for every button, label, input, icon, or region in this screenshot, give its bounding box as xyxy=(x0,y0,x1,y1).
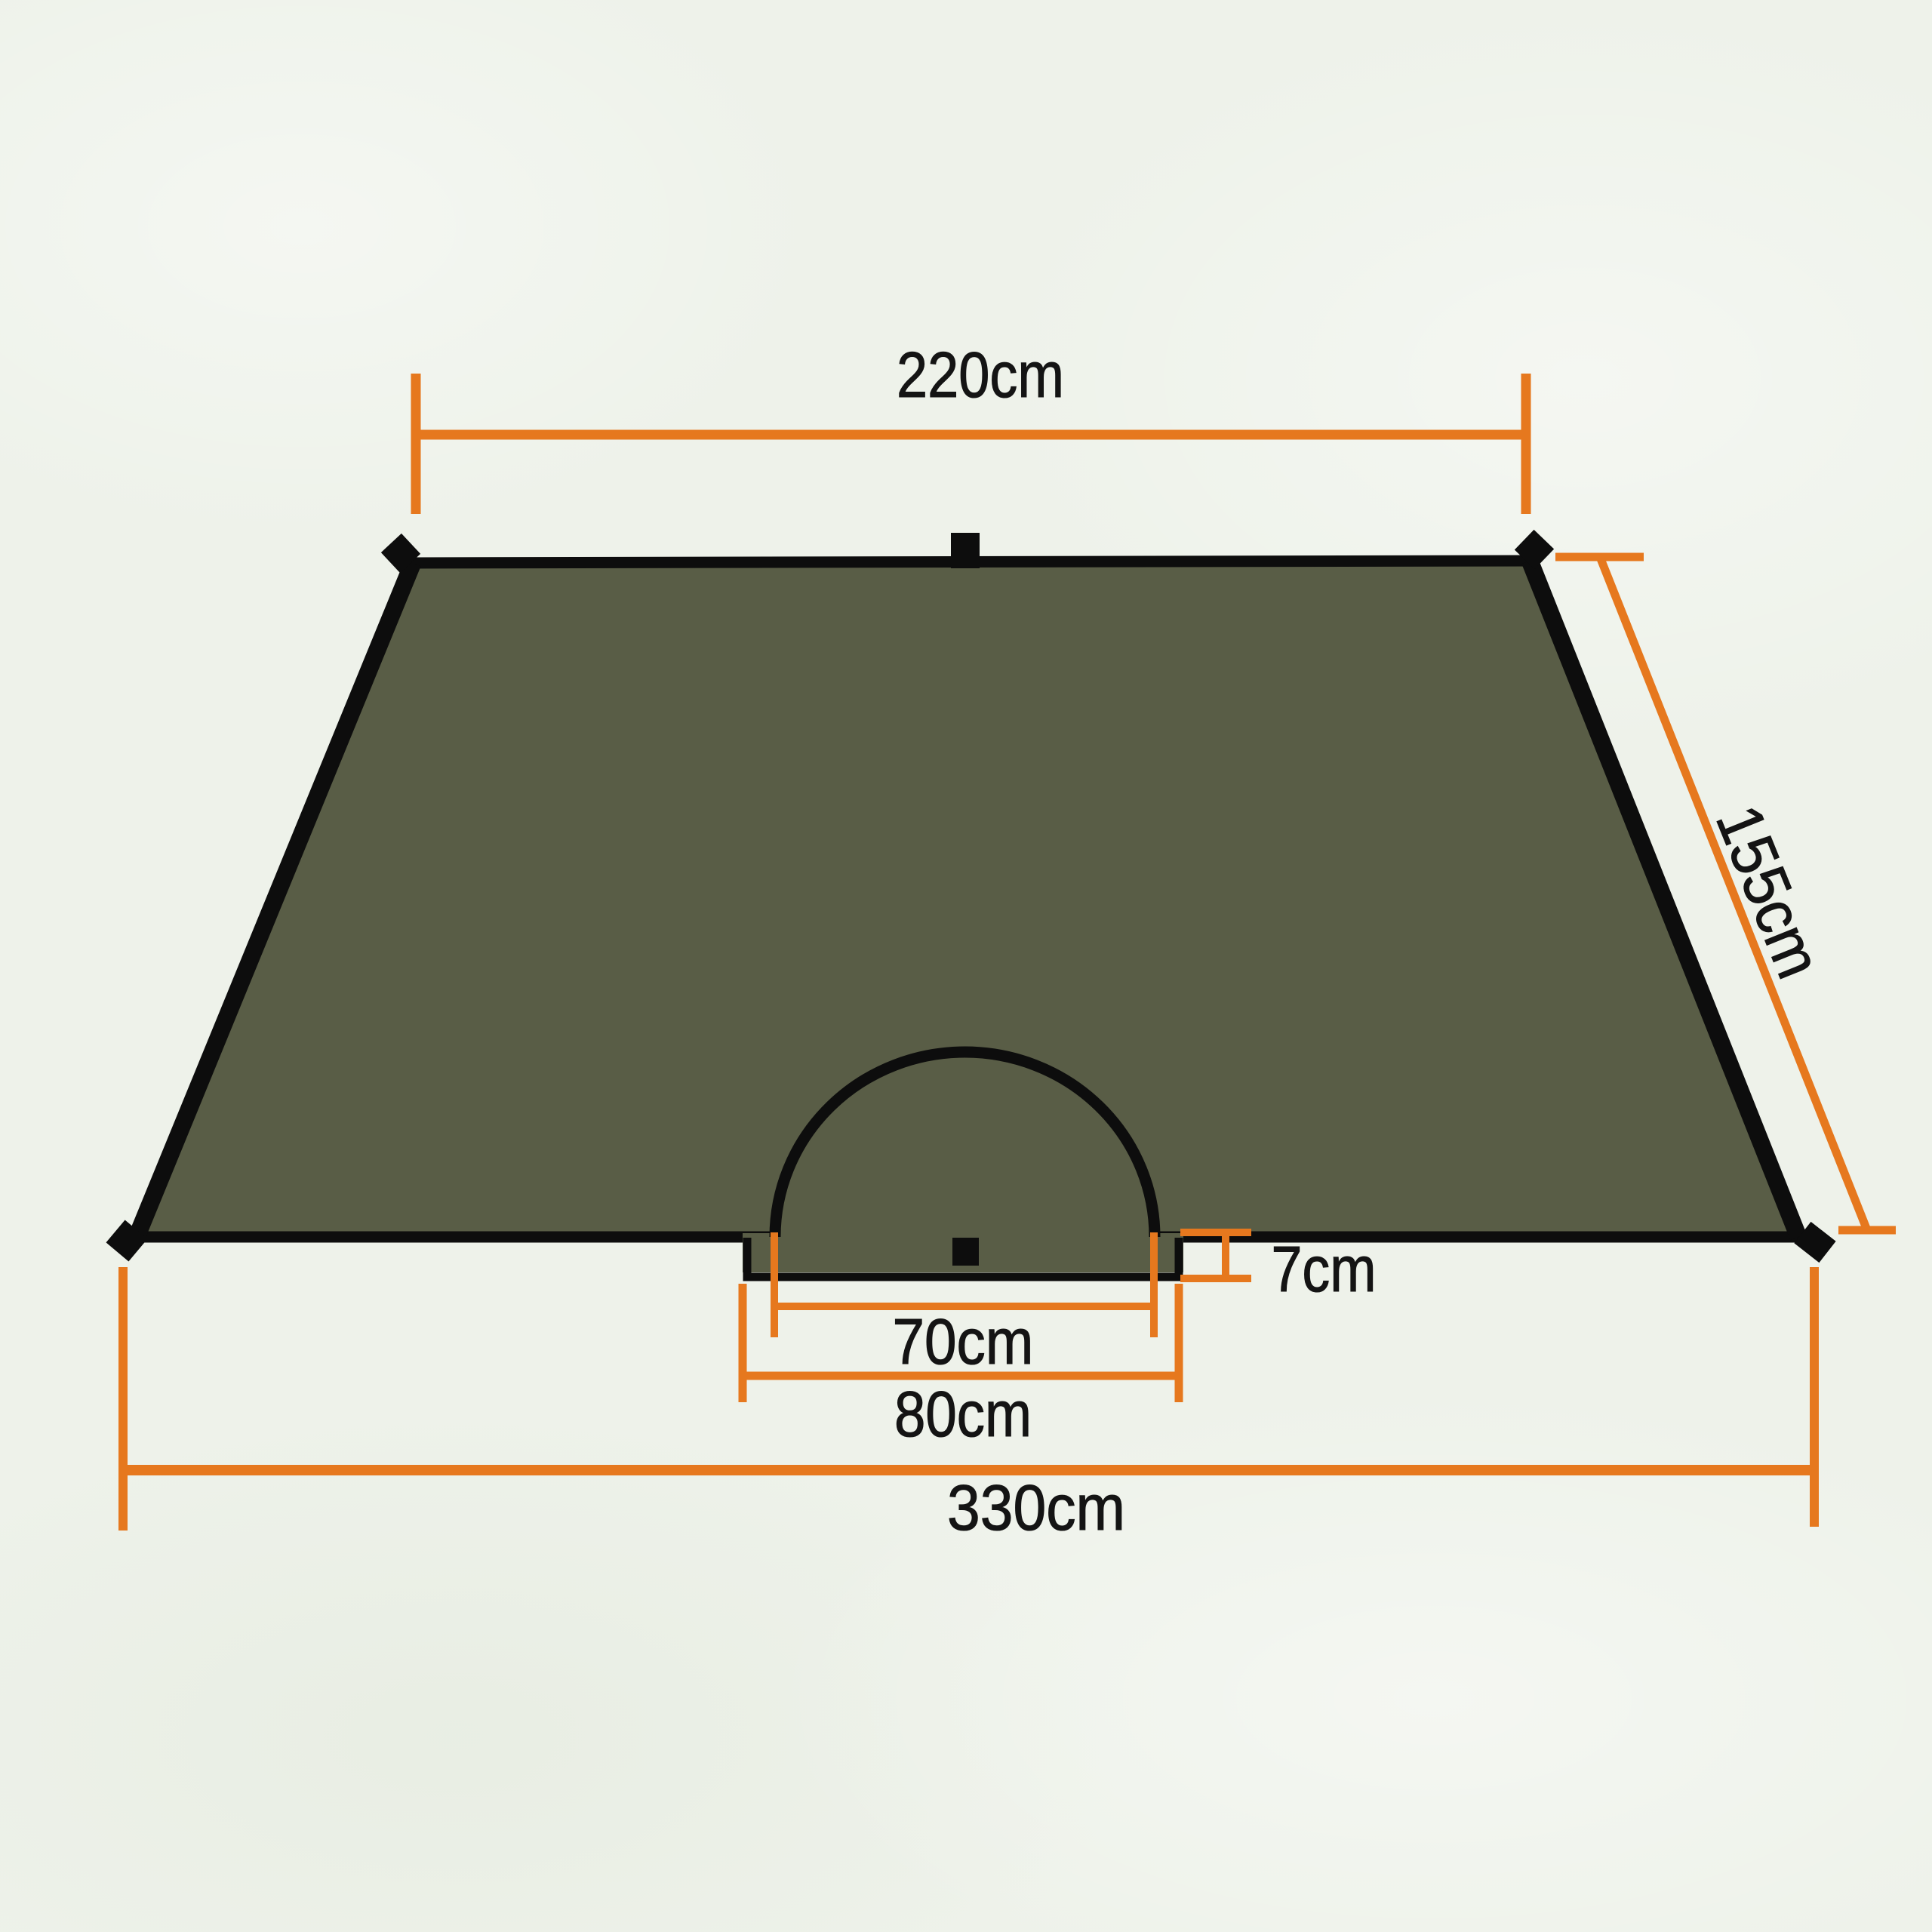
svg-text:330cm: 330cm xyxy=(947,1472,1125,1544)
svg-text:220cm: 220cm xyxy=(897,340,1064,411)
svg-text:80cm: 80cm xyxy=(894,1379,1032,1451)
svg-text:7cm: 7cm xyxy=(1272,1234,1377,1306)
svg-text:70cm: 70cm xyxy=(893,1306,1034,1378)
